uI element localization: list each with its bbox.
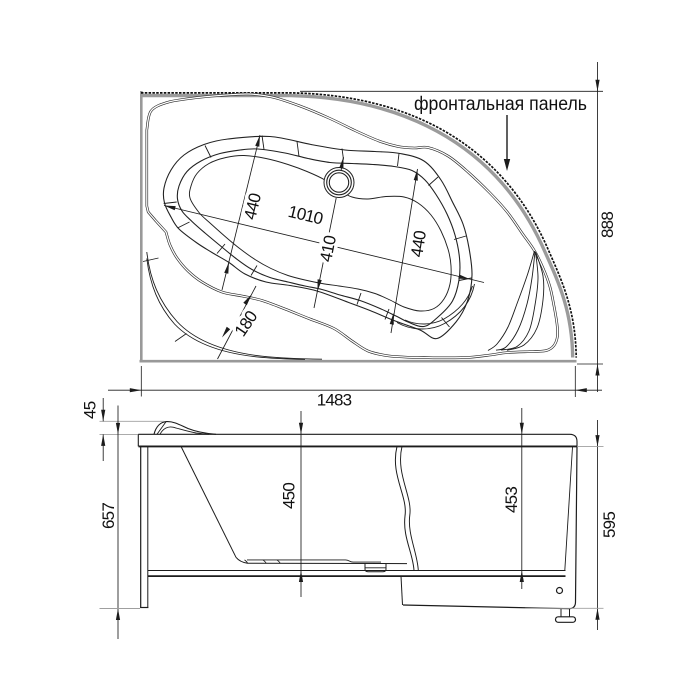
svg-text:45: 45 — [81, 401, 100, 419]
svg-text:1483: 1483 — [317, 391, 352, 410]
svg-text:450: 450 — [280, 483, 299, 509]
svg-text:440: 440 — [407, 229, 430, 258]
svg-text:фронтальная панель: фронтальная панель — [414, 94, 587, 115]
svg-text:888: 888 — [598, 212, 617, 238]
svg-text:657: 657 — [99, 503, 118, 529]
svg-text:453: 453 — [502, 487, 521, 513]
svg-text:595: 595 — [600, 512, 619, 538]
